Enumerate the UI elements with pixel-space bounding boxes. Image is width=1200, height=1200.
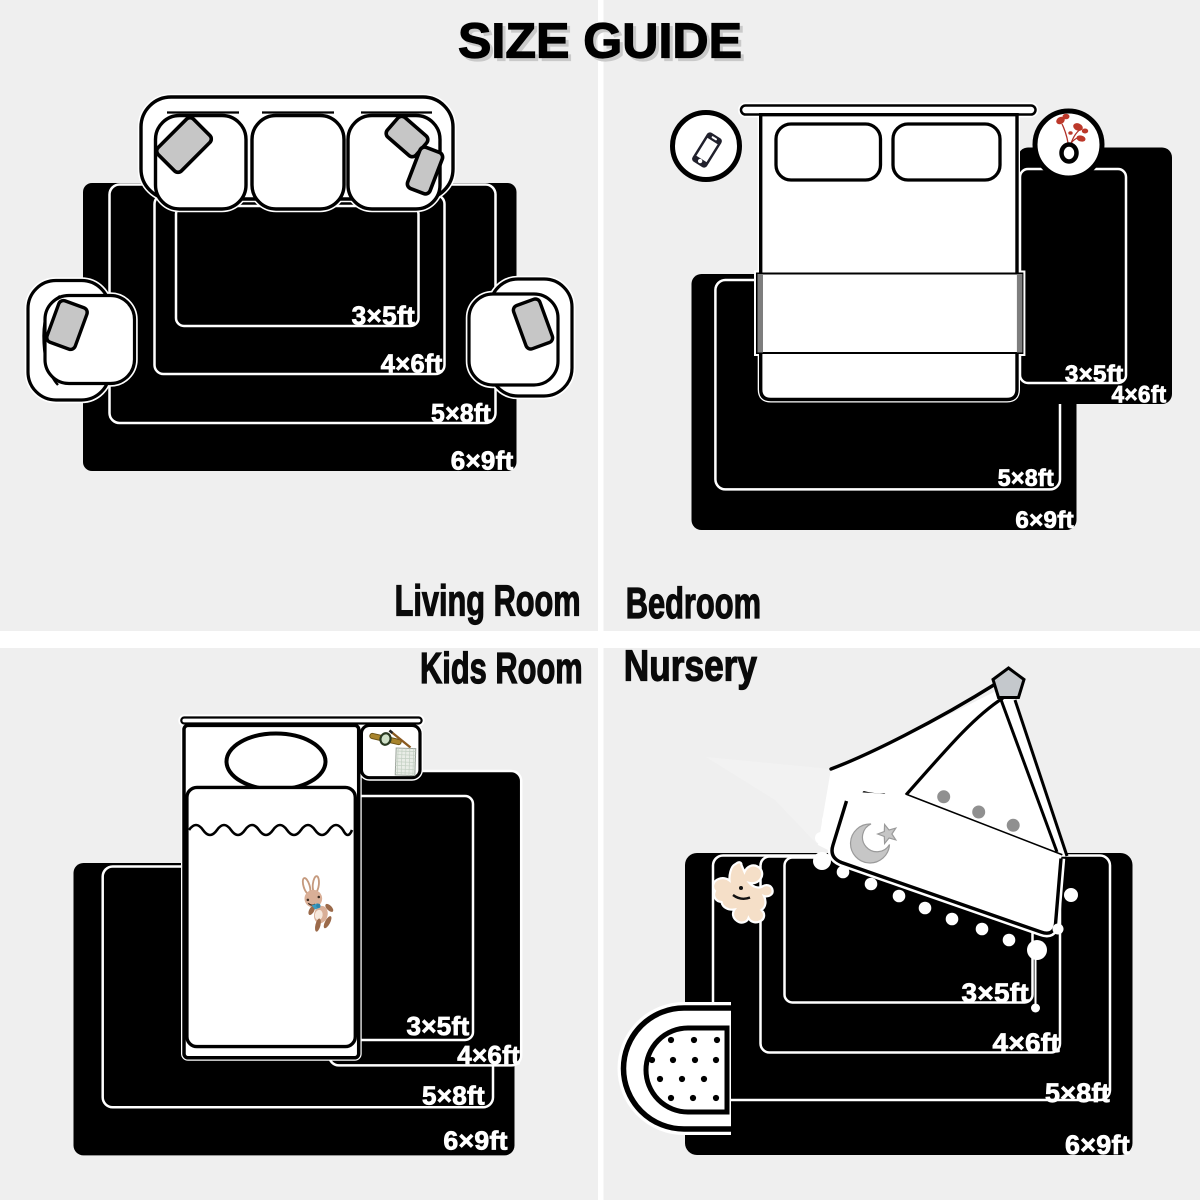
svg-text:Living Room: Living Room [395, 577, 581, 625]
svg-text:3×5ft: 3×5ft [352, 301, 415, 331]
svg-text:5×8ft: 5×8ft [431, 398, 491, 428]
svg-text:3×5ft: 3×5ft [962, 978, 1030, 1008]
svg-text:4×6ft: 4×6ft [993, 1028, 1061, 1058]
svg-text:SIZE GUIDE: SIZE GUIDE [458, 15, 742, 69]
svg-text:5×8ft: 5×8ft [422, 1081, 485, 1111]
svg-text:6×9ft: 6×9ft [443, 1126, 507, 1156]
svg-text:6×9ft: 6×9ft [1015, 507, 1074, 534]
svg-text:4×6ft: 4×6ft [1112, 382, 1167, 409]
svg-text:3×5ft: 3×5ft [407, 1011, 470, 1041]
svg-text:Bedroom: Bedroom [626, 580, 761, 628]
svg-text:6×9ft: 6×9ft [451, 446, 514, 476]
svg-text:5×8ft: 5×8ft [998, 465, 1054, 492]
svg-text:4×6ft: 4×6ft [381, 349, 443, 379]
svg-text:4×6ft: 4×6ft [457, 1040, 520, 1070]
svg-text:Nursery: Nursery [624, 642, 757, 690]
svg-text:6×9ft: 6×9ft [1065, 1130, 1130, 1160]
svg-text:5×8ft: 5×8ft [1045, 1078, 1110, 1108]
svg-text:Kids Room: Kids Room [420, 645, 583, 693]
